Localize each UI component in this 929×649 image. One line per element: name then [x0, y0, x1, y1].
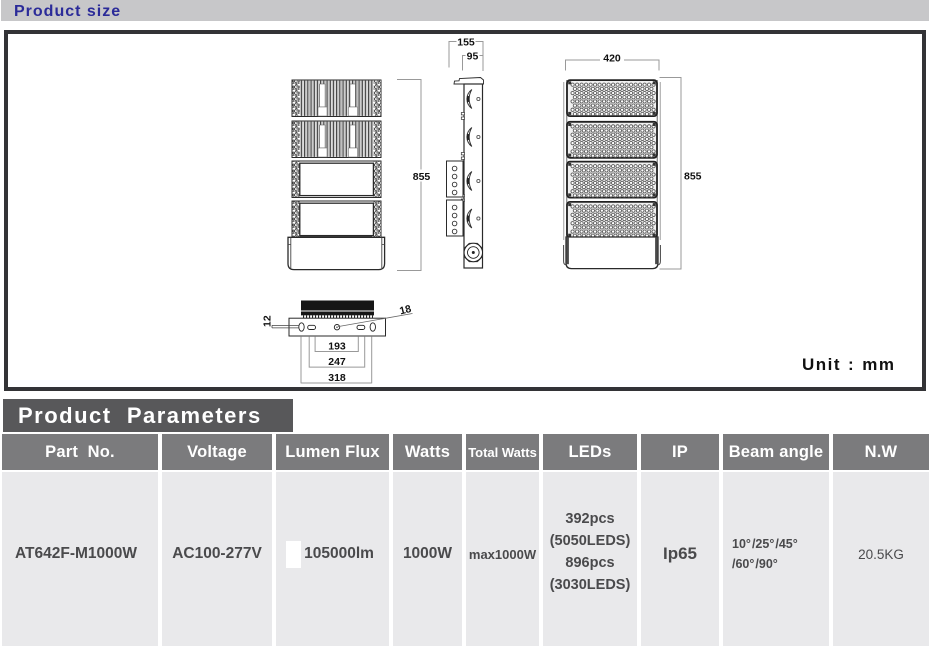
svg-text:318: 318	[328, 372, 346, 384]
svg-text:95: 95	[467, 51, 479, 63]
svg-text:12: 12	[262, 315, 274, 327]
svg-text:420: 420	[603, 52, 621, 64]
svg-text:855: 855	[684, 171, 702, 183]
svg-text:855: 855	[413, 171, 431, 183]
svg-text:155: 155	[457, 37, 475, 49]
svg-text:247: 247	[328, 356, 346, 368]
svg-text:193: 193	[328, 340, 346, 352]
